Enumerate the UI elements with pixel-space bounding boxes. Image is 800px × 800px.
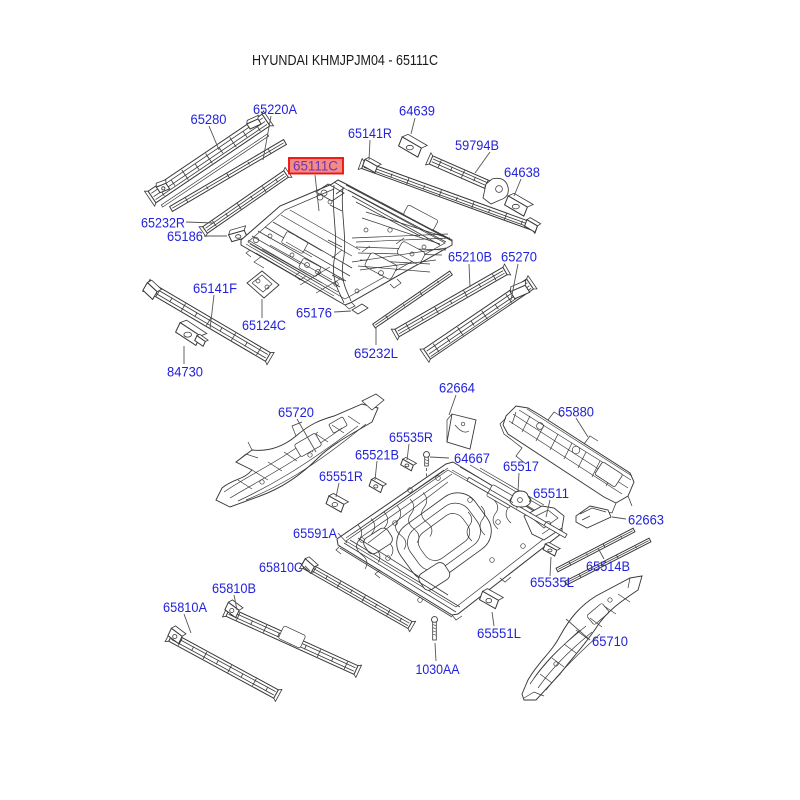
svg-text:65124C: 65124C [242,318,286,333]
svg-text:65176: 65176 [296,306,332,321]
svg-text:HYUNDAI KHMJPJM04 - 65111C: HYUNDAI KHMJPJM04 - 65111C [252,52,438,69]
svg-text:65517: 65517 [503,459,539,474]
svg-text:65186: 65186 [167,229,203,244]
svg-text:64638: 64638 [504,165,540,180]
svg-text:65210B: 65210B [448,250,492,265]
svg-text:65220A: 65220A [253,102,297,117]
svg-text:84730: 84730 [167,365,203,380]
svg-text:65880: 65880 [558,405,594,420]
svg-text:62663: 62663 [628,513,664,528]
svg-text:65535L: 65535L [530,575,574,590]
svg-text:65810A: 65810A [163,600,207,615]
svg-text:59794B: 59794B [455,138,499,153]
svg-text:65720: 65720 [278,405,314,420]
svg-text:64639: 64639 [399,104,435,119]
svg-text:65591A: 65591A [293,526,337,541]
svg-text:64667: 64667 [454,451,490,466]
svg-text:1030AA: 1030AA [416,662,460,677]
svg-text:65141F: 65141F [193,281,237,296]
svg-text:65141R: 65141R [348,126,392,141]
svg-text:65270: 65270 [501,250,537,265]
svg-text:65551L: 65551L [477,626,521,641]
svg-text:65511: 65511 [533,486,569,501]
svg-text:65535R: 65535R [389,430,433,445]
svg-text:62664: 62664 [439,381,475,396]
svg-text:65521B: 65521B [355,448,399,463]
svg-text:65810C: 65810C [259,560,303,575]
svg-text:65232L: 65232L [354,346,398,361]
svg-text:65810B: 65810B [212,581,256,596]
svg-text:65551R: 65551R [319,469,363,484]
svg-text:65710: 65710 [592,634,628,649]
svg-text:65514B: 65514B [586,559,630,574]
svg-text:65280: 65280 [191,112,227,127]
svg-text:65111C: 65111C [293,159,338,174]
